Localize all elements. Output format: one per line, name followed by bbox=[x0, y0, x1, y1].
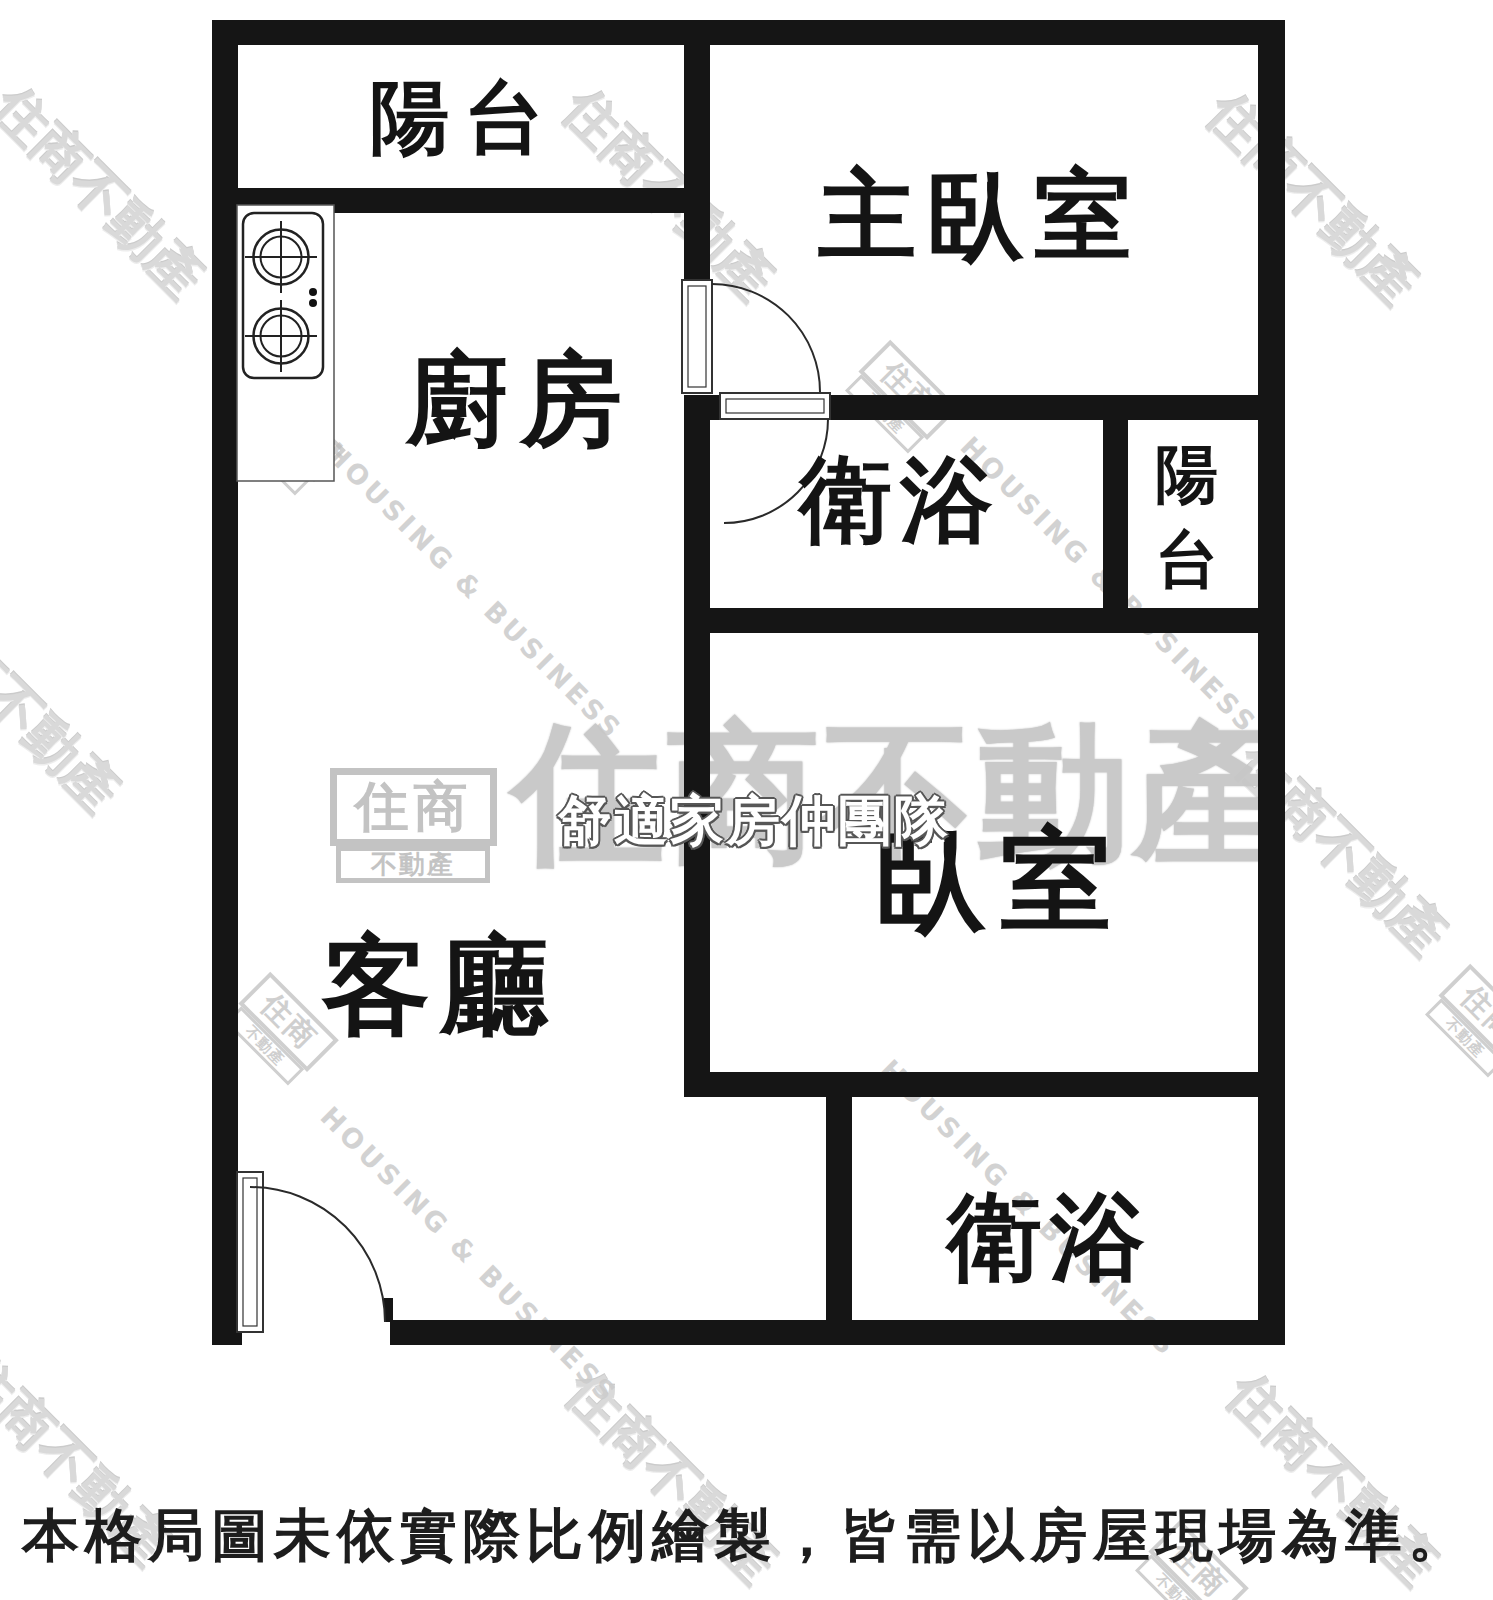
room-label-bathroom-main: 衛浴 bbox=[799, 454, 1001, 547]
room-label-balcony-top: 陽台 bbox=[370, 78, 558, 158]
room-label-bathroom-second: 衛浴 bbox=[947, 1190, 1153, 1285]
team-name-watermark: 舒適家房仲團隊 bbox=[558, 794, 950, 848]
stove-icon bbox=[243, 213, 323, 378]
room-label-kitchen: 廚房 bbox=[406, 349, 634, 451]
floorplan-canvas: 住商不動產 住商不動產 住商不動產 住商不動產 住商不動產 住商不動產 住商不動… bbox=[0, 0, 1493, 1600]
disclaimer-text: 本格局圖未依實際比例繪製，皆需以房屋現場為準。 bbox=[22, 1504, 1471, 1567]
room-label-living-room: 客廳 bbox=[322, 932, 558, 1040]
room-label-balcony-side: 陽台 bbox=[1156, 432, 1219, 602]
master-bedroom-door bbox=[682, 280, 820, 393]
room-label-master-bedroom: 主臥室 bbox=[818, 166, 1142, 264]
entry-door bbox=[237, 1172, 385, 1332]
